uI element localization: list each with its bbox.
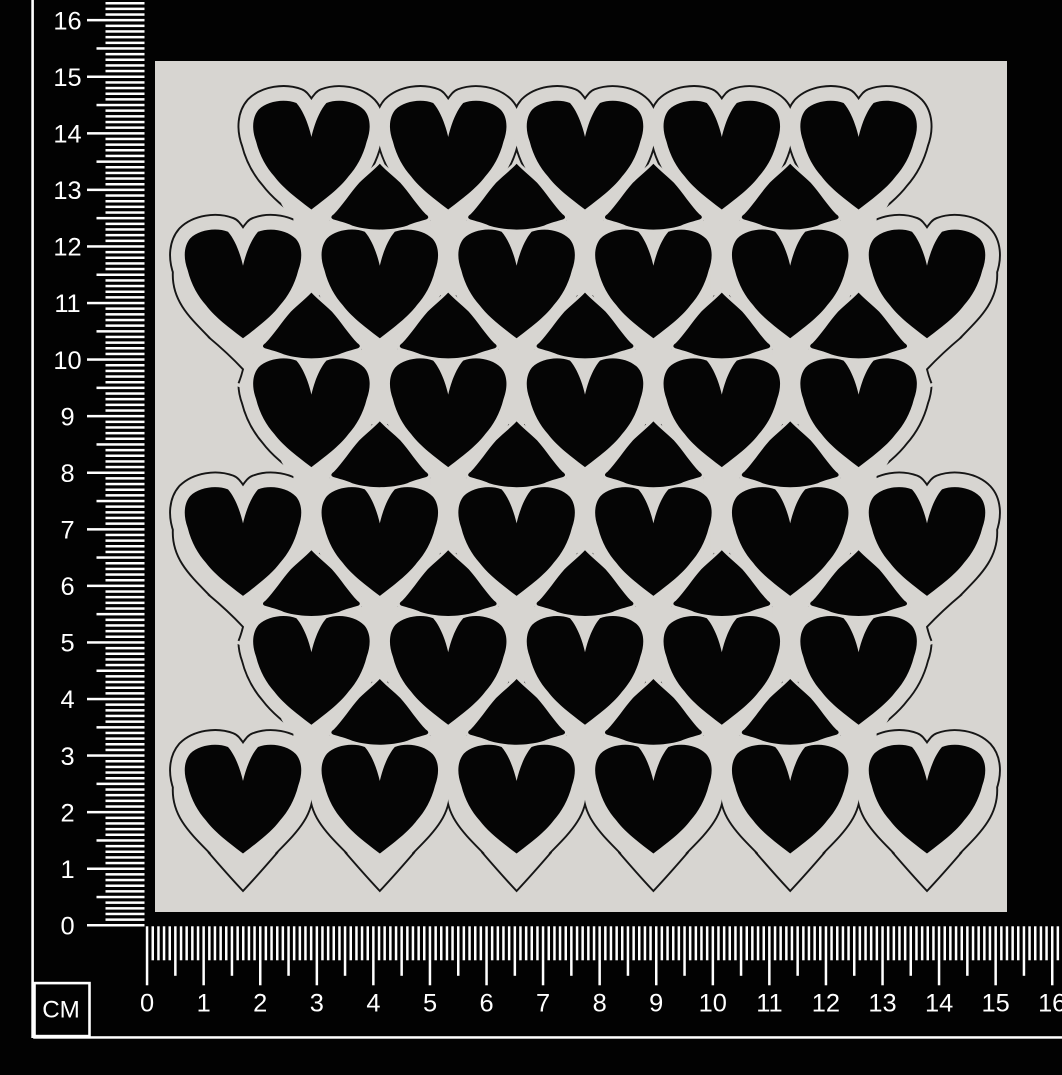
svg-text:16: 16	[1038, 990, 1062, 1018]
svg-text:12: 12	[53, 234, 81, 262]
svg-text:10: 10	[53, 347, 81, 375]
svg-text:15: 15	[53, 64, 81, 92]
svg-text:6: 6	[479, 990, 493, 1018]
svg-text:14: 14	[925, 990, 953, 1018]
svg-text:11: 11	[756, 990, 782, 1018]
svg-text:12: 12	[812, 990, 840, 1018]
svg-text:5: 5	[60, 630, 74, 658]
svg-text:1: 1	[197, 990, 211, 1018]
svg-text:7: 7	[536, 990, 550, 1018]
svg-text:14: 14	[53, 121, 81, 149]
svg-text:1: 1	[60, 856, 74, 884]
svg-text:4: 4	[60, 686, 74, 714]
svg-text:3: 3	[310, 990, 324, 1018]
svg-text:3: 3	[60, 743, 74, 771]
svg-text:CM: CM	[42, 997, 80, 1024]
svg-text:16: 16	[53, 7, 81, 35]
svg-text:2: 2	[60, 799, 74, 827]
svg-text:7: 7	[60, 517, 74, 545]
svg-text:13: 13	[868, 990, 896, 1018]
svg-text:10: 10	[699, 990, 727, 1018]
svg-text:8: 8	[593, 990, 607, 1018]
svg-text:6: 6	[60, 573, 74, 601]
svg-text:8: 8	[60, 460, 74, 488]
svg-text:4: 4	[366, 990, 380, 1018]
svg-text:0: 0	[60, 913, 74, 941]
svg-text:15: 15	[981, 990, 1009, 1018]
svg-text:5: 5	[423, 990, 437, 1018]
svg-text:13: 13	[53, 177, 81, 205]
svg-text:9: 9	[649, 990, 663, 1018]
svg-text:2: 2	[253, 990, 267, 1018]
svg-text:9: 9	[60, 403, 74, 431]
svg-text:0: 0	[140, 990, 154, 1018]
svg-text:11: 11	[54, 290, 80, 318]
